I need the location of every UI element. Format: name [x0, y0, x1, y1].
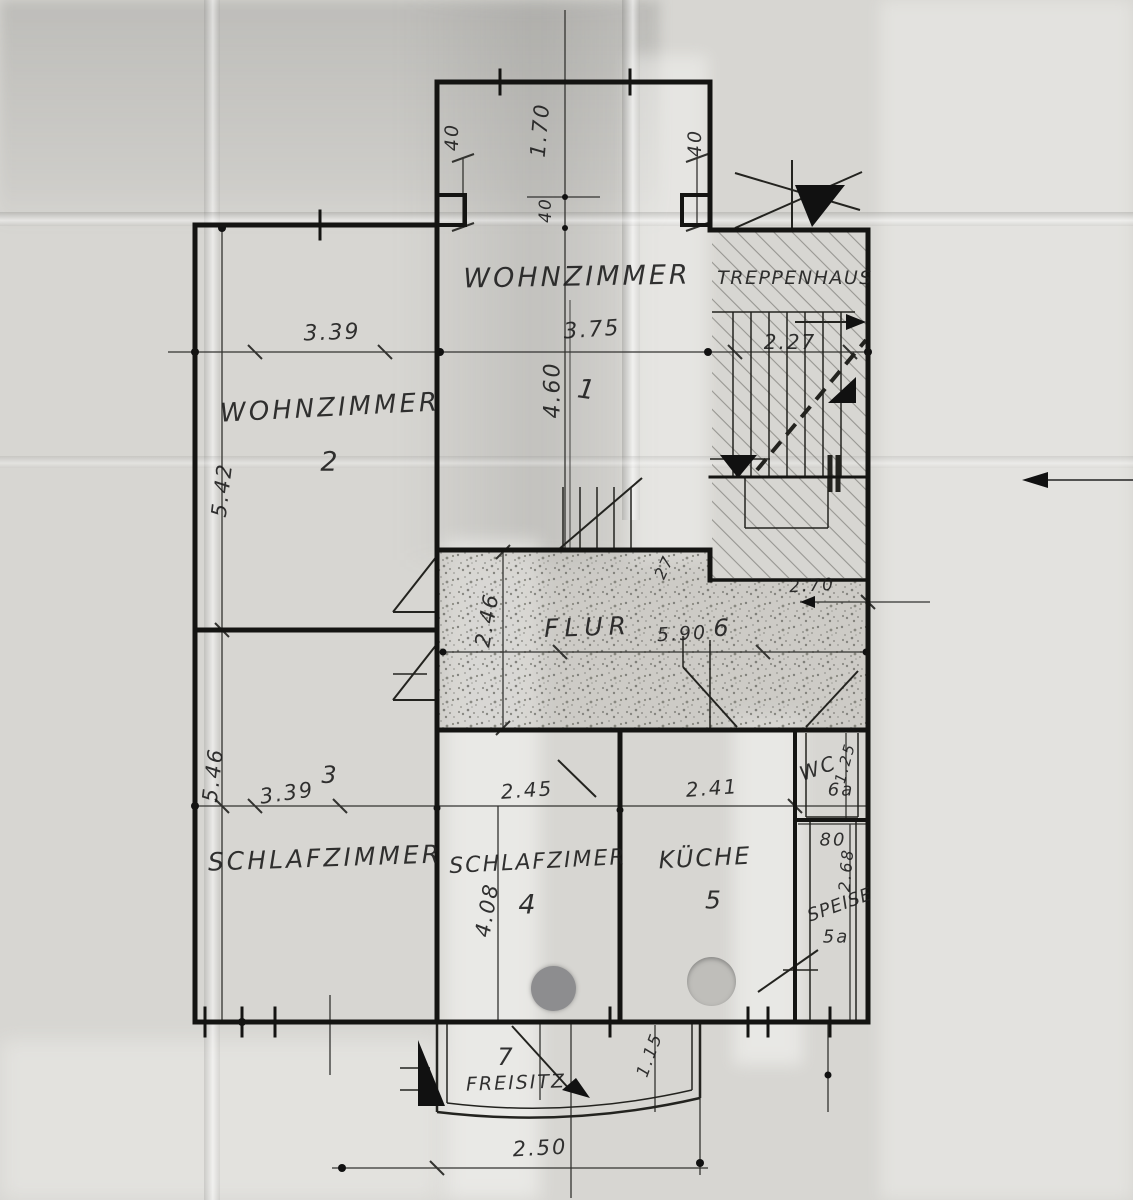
room-number-5: 5	[705, 886, 723, 915]
punch-hole-right	[687, 957, 736, 1006]
room-label-treppenhaus: TREPPENHAUS	[717, 267, 873, 289]
dim-freisitz-width: 2.50	[512, 1135, 568, 1162]
room-number-4: 4	[518, 890, 537, 921]
dim-bay-left: 40	[441, 123, 463, 151]
room-number-3: 3	[321, 761, 338, 789]
dim-wz1-width: 3.75	[563, 316, 622, 345]
dim-treppenhaus-width: 2.27	[764, 330, 817, 354]
punch-hole-left	[531, 966, 576, 1011]
dim-flur-length: 5.90	[656, 622, 707, 647]
freisitz-marker-icon	[418, 1040, 445, 1106]
entrance-arrow-icon	[795, 185, 845, 227]
room-number-5a: 5a	[823, 927, 849, 948]
dim-kueche-width: 2.41	[685, 774, 739, 802]
dim-wz1-depth: 4.60	[541, 362, 566, 419]
room-number-7: 7	[497, 1043, 514, 1071]
room-label-kueche: KÜCHE	[658, 842, 752, 875]
reference-arrow-icon	[1022, 472, 1133, 488]
dim-wz2-width: 3.39	[303, 320, 361, 347]
dim-speise-depth: 2.68	[835, 847, 858, 892]
room-label-freisitz: FREISITZ	[466, 1070, 567, 1095]
floorplan-drawing	[0, 0, 1133, 1200]
scanned-floor-plan: WOHNZIMMER 3.75 4.60 1 TREPPENHAUS 2.27 …	[0, 0, 1133, 1200]
room-label-wohnzimmer-1: WOHNZIMMER	[463, 260, 691, 295]
dim-bay-depth: 1.70	[526, 102, 555, 159]
room-number-6: 6	[713, 614, 730, 642]
dim-bay-step: 40	[536, 197, 556, 223]
room-label-flur: FLUR	[544, 611, 633, 643]
dim-bay-right: 40	[684, 129, 706, 157]
dim-sz4-width: 2.45	[500, 776, 554, 804]
room-number-2: 2	[320, 447, 339, 478]
dim-flur-right-width: 2.70	[789, 575, 836, 597]
